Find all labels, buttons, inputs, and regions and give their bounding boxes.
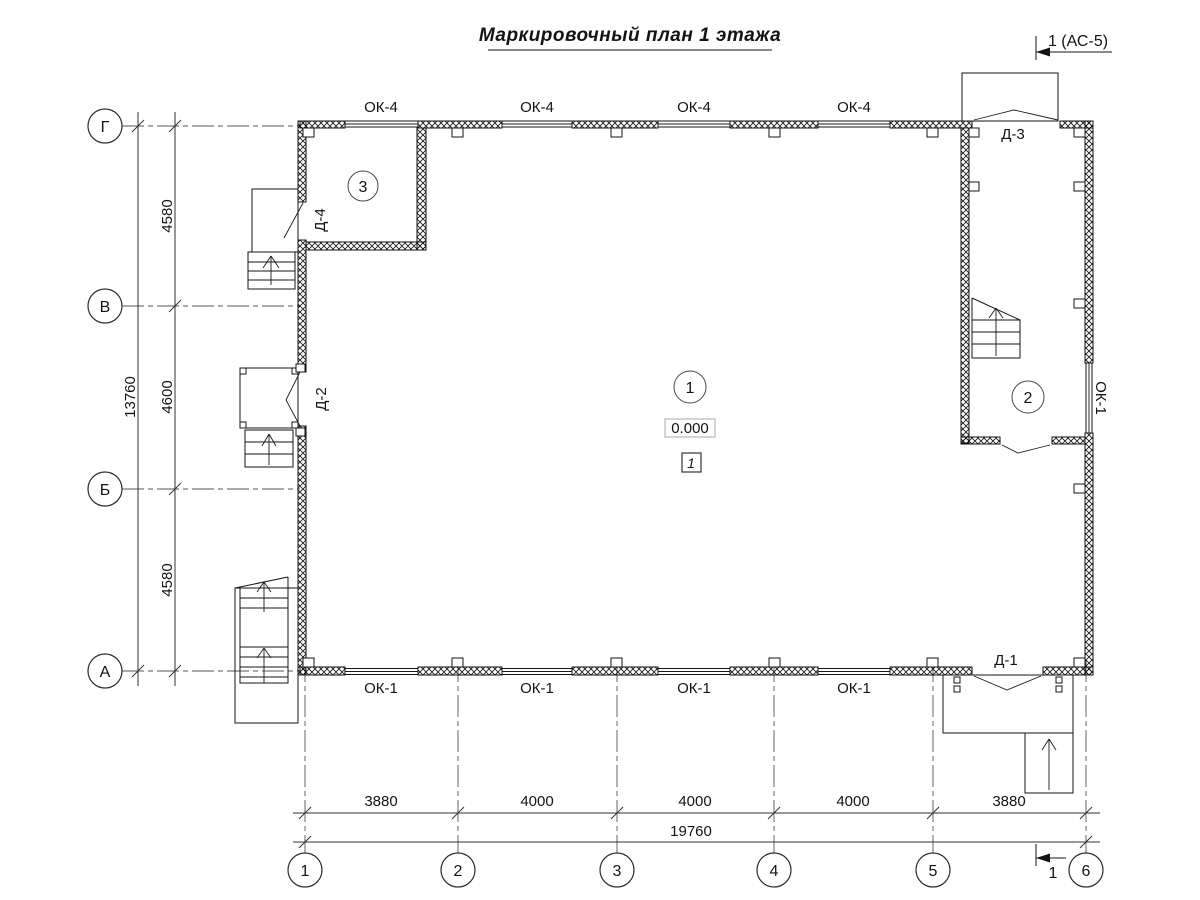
dim-left-seg-1: 4580 <box>159 199 176 232</box>
section-label-top: 1 (АС-5) <box>1048 33 1108 50</box>
stair-d2 <box>245 430 293 467</box>
window-label-ok4-2: ОК-4 <box>520 99 554 116</box>
ramp-d1 <box>1025 733 1073 793</box>
room-tag-2: 2 <box>1024 390 1033 407</box>
axis-label-5: 5 <box>929 863 938 880</box>
stair-d4 <box>248 252 295 289</box>
door-label-d2: Д-2 <box>313 387 330 411</box>
porch-d4 <box>252 189 298 252</box>
axis-label-2: 2 <box>454 863 463 880</box>
floor-plan-drawing: Маркировочный план 1 этажа Г В Б А 1 2 3… <box>0 0 1200 900</box>
dim-left-seg-2: 4600 <box>159 380 176 413</box>
window-label-ok1-1: ОК-1 <box>364 680 398 697</box>
col-axis-bubbles: 1 2 3 4 5 6 <box>288 853 1103 887</box>
stair-southwest <box>235 577 298 723</box>
window-right: ОК-1 <box>1086 363 1109 433</box>
page-title: Маркировочный план 1 этажа <box>479 25 781 46</box>
elevation-value: 0.000 <box>671 420 709 437</box>
dim-bottom-seg-2: 4000 <box>520 793 553 810</box>
drawing-title: Маркировочный план 1 этажа <box>479 25 781 50</box>
window-label-ok4-3: ОК-4 <box>677 99 711 116</box>
dim-bottom-total: 19760 <box>670 823 712 840</box>
floor-plan-sheet: Маркировочный план 1 этажа Г В Б А 1 2 3… <box>0 0 1200 900</box>
dim-bottom-seg-5: 3880 <box>992 793 1025 810</box>
stair-room2 <box>972 298 1020 358</box>
bottom-dimension-chain: 3880 4000 4000 4000 3880 19760 <box>293 793 1100 848</box>
dim-bottom-seg-4: 4000 <box>836 793 869 810</box>
door-swing-d3 <box>974 110 1058 120</box>
room-tag-1: 1 <box>686 380 695 397</box>
porch-d3 <box>962 73 1058 121</box>
window-label-ok1-3: ОК-1 <box>677 680 711 697</box>
room-tags: 1 2 3 <box>348 171 1044 413</box>
doors: Д-4 Д-2 Д-3 Д-1 <box>284 110 1062 692</box>
dim-left-seg-3: 4580 <box>159 563 176 596</box>
axis-label-1: 1 <box>301 863 310 880</box>
door-label-d4: Д-4 <box>312 208 329 232</box>
dim-left-total: 13760 <box>122 376 139 418</box>
axis-label-3: 3 <box>613 863 622 880</box>
window-label-ok4-1: ОК-4 <box>364 99 398 116</box>
window-label-ok1-right: ОК-1 <box>1092 381 1109 415</box>
axis-label-a: А <box>100 664 111 681</box>
window-label-ok4-4: ОК-4 <box>837 99 871 116</box>
axis-label-4: 4 <box>770 863 779 880</box>
row-axis-bubbles: Г В Б А <box>88 109 122 688</box>
axis-label-g: Г <box>101 119 110 136</box>
door-swing-room2 <box>1002 445 1050 453</box>
axis-label-6: 6 <box>1082 863 1091 880</box>
left-dimension-chain: 4580 4600 4580 13760 <box>122 112 181 686</box>
section-arrow-bottom <box>1036 854 1050 863</box>
section-mark-bottom: 1 <box>1036 844 1066 882</box>
section-mark-top: 1 (АС-5) <box>1036 33 1112 60</box>
dim-bottom-seg-1: 3880 <box>364 793 397 810</box>
porch-d2-corner-marks <box>240 368 298 428</box>
axis-label-v: В <box>100 299 111 316</box>
axis-label-b: Б <box>100 482 111 499</box>
axis-grid-lines <box>122 126 1086 853</box>
door-label-d3: Д-3 <box>1001 126 1025 143</box>
porch-d1 <box>943 675 1073 733</box>
window-label-ok1-4: ОК-1 <box>837 680 871 697</box>
elevation-mark: 0.000 <box>665 419 715 437</box>
room-tag-3: 3 <box>359 179 368 196</box>
door-leaf-d4 <box>284 203 303 238</box>
porch-d2 <box>240 368 298 428</box>
floor-type-value: 1 <box>687 455 695 471</box>
door-label-d1: Д-1 <box>994 652 1018 669</box>
dim-bottom-seg-3: 4000 <box>678 793 711 810</box>
floor-type-mark: 1 <box>682 453 701 472</box>
window-label-ok1-2: ОК-1 <box>520 680 554 697</box>
door-swing-d1 <box>974 676 1041 690</box>
section-label-bottom: 1 <box>1049 865 1058 882</box>
